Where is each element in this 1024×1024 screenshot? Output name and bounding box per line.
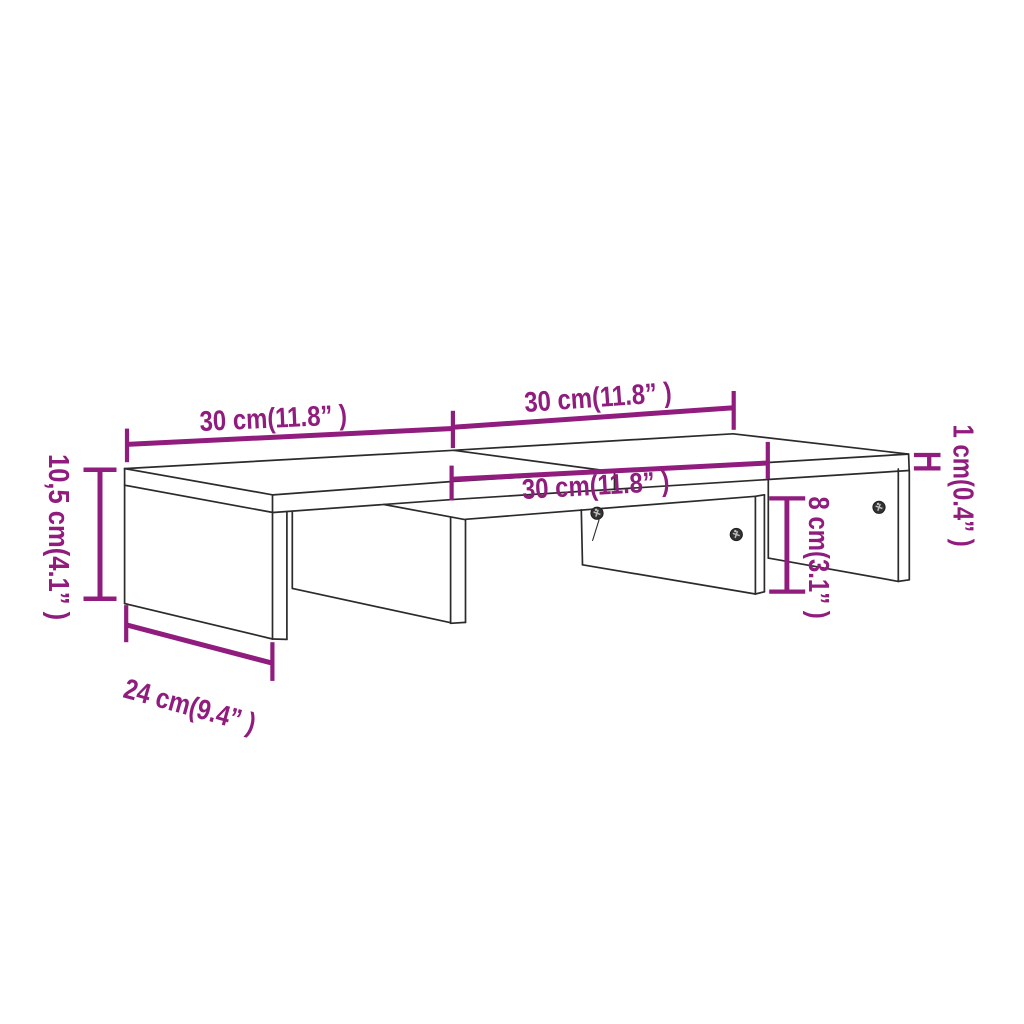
svg-text:1 cm(0.4” ): 1 cm(0.4” ) [947,425,979,547]
svg-text:30 cm(11.8” ): 30 cm(11.8” ) [199,398,348,437]
svg-text:10,5 cm(4.1” ): 10,5 cm(4.1” ) [43,454,75,620]
svg-text:8 cm(3.1” ): 8 cm(3.1” ) [803,497,835,619]
